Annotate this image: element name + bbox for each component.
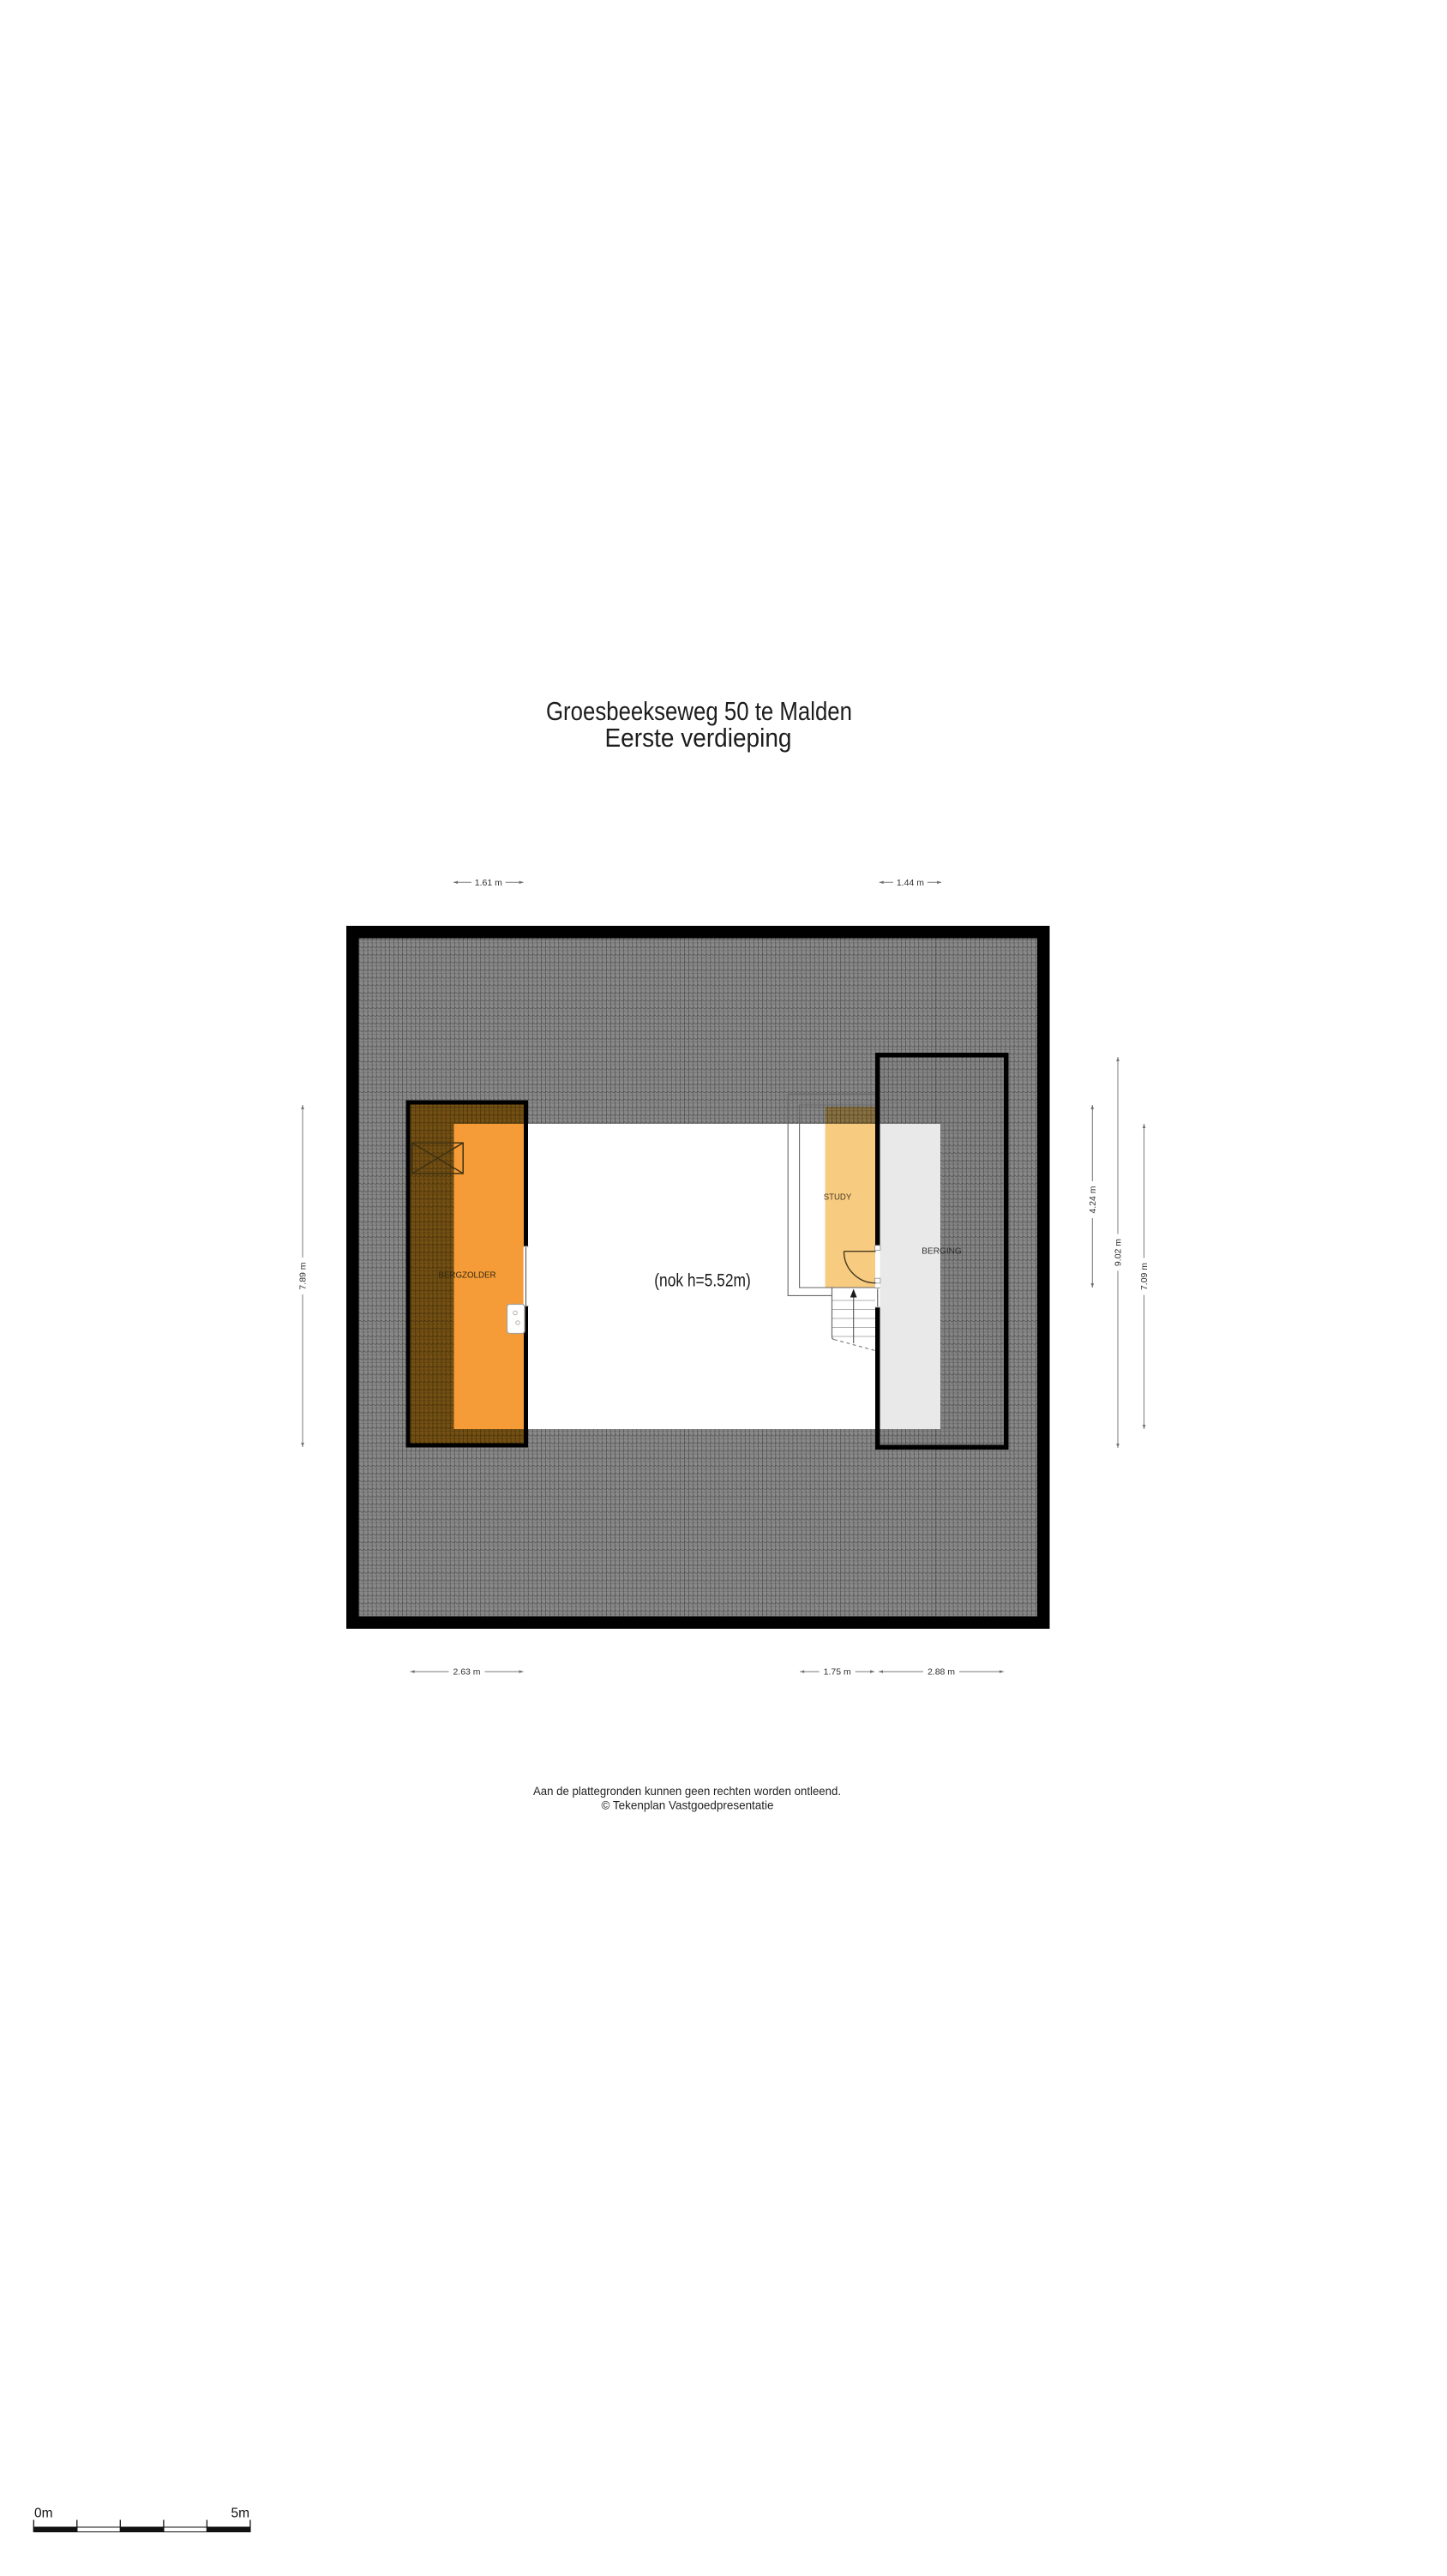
svg-text:7.89 m: 7.89 m (298, 1262, 309, 1289)
svg-text:4.24 m: 4.24 m (1088, 1186, 1098, 1213)
svg-text:1.61 m: 1.61 m (475, 878, 502, 888)
svg-text:1.44 m: 1.44 m (897, 878, 924, 888)
svg-text:2.88 m: 2.88 m (928, 1667, 955, 1678)
svg-text:Eerste verdieping: Eerste verdieping (605, 723, 792, 753)
svg-text:BERGING: BERGING (922, 1247, 962, 1257)
svg-text:9.02 m: 9.02 m (1114, 1239, 1124, 1266)
svg-text:© Tekenplan Vastgoedpresentati: © Tekenplan Vastgoedpresentatie (602, 1798, 774, 1811)
svg-text:5m: 5m (231, 2506, 249, 2520)
svg-text:(nok h=5.52m): (nok h=5.52m) (654, 1270, 751, 1291)
svg-text:0m: 0m (34, 2506, 53, 2520)
svg-text:7.09 m: 7.09 m (1139, 1263, 1150, 1290)
svg-text:Groesbeekseweg 50 te Malden: Groesbeekseweg 50 te Malden (546, 696, 852, 726)
svg-text:STUDY: STUDY (824, 1192, 852, 1202)
svg-text:1.75 m: 1.75 m (824, 1667, 851, 1678)
svg-text:BERGZOLDER: BERGZOLDER (439, 1271, 496, 1281)
svg-text:2.63 m: 2.63 m (453, 1667, 480, 1678)
svg-text:Aan de plattegronden kunnen ge: Aan de plattegronden kunnen geen rechten… (533, 1784, 841, 1798)
